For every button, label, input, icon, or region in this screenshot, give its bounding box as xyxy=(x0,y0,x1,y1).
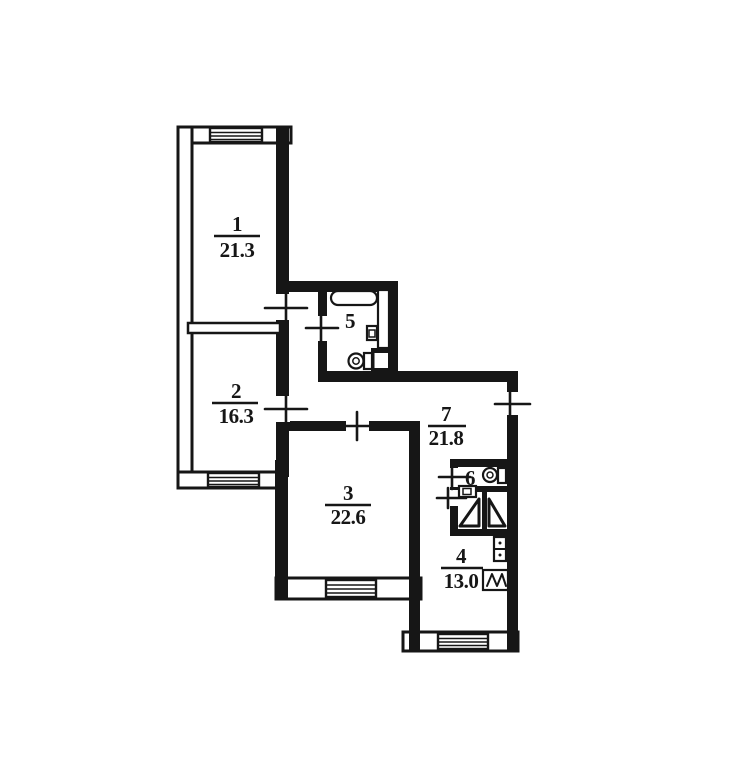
window-room2 xyxy=(208,473,259,487)
room-3-area: 22.6 xyxy=(331,505,366,529)
room-4-label: 4 13.0 xyxy=(441,544,483,593)
floor-plan-page: 1 21.3 2 16.3 3 22.6 4 13.0 5 6 7 21.8 xyxy=(0,0,752,768)
room-6-label: 6 xyxy=(465,466,475,490)
room-2-label: 2 16.3 xyxy=(212,379,258,428)
room-7-label: 7 21.8 xyxy=(428,402,466,450)
vent-shaft-block xyxy=(371,348,392,373)
room-3-label: 3 22.6 xyxy=(325,481,371,529)
wc-toilet xyxy=(483,468,506,483)
wall-rooms12-divider xyxy=(188,323,280,333)
room-5-number: 5 xyxy=(345,309,355,333)
room-6-number: 6 xyxy=(465,466,475,490)
door-bathroom xyxy=(306,315,338,342)
room-1-area: 21.3 xyxy=(220,238,255,262)
wall-closet-bottom xyxy=(450,529,508,536)
stove xyxy=(483,570,508,590)
room-7-number: 7 xyxy=(441,402,451,426)
bathtub xyxy=(331,291,377,305)
room-4-area: 13.0 xyxy=(444,569,479,593)
kitchen-vent-grille xyxy=(494,537,506,561)
bathroom-toilet xyxy=(349,353,373,369)
window-room3 xyxy=(326,580,376,597)
wall-wc-top xyxy=(450,459,507,467)
window-room1 xyxy=(210,128,262,142)
door-room2 xyxy=(265,395,307,423)
floor-plan-drawing: 1 21.3 2 16.3 3 22.6 4 13.0 5 6 7 21.8 xyxy=(0,0,752,768)
wall-left-outer xyxy=(178,127,192,488)
room-labels: 1 21.3 2 16.3 3 22.6 4 13.0 5 6 7 21.8 xyxy=(212,212,483,593)
wall-room3-right xyxy=(409,421,420,651)
room-2-number: 2 xyxy=(231,379,241,403)
vent-duct xyxy=(378,290,389,348)
wall-elbow-left xyxy=(275,460,288,600)
room-4-number: 4 xyxy=(456,544,467,568)
wall-closet-divider xyxy=(482,492,487,531)
room-7-area: 21.8 xyxy=(429,426,464,450)
window-kitchen xyxy=(438,634,488,649)
room-1-label: 1 21.3 xyxy=(214,212,260,262)
room-1-number: 1 xyxy=(232,212,242,236)
door-room3 xyxy=(344,412,371,440)
room-5-label: 5 xyxy=(345,309,355,333)
wall-hall-top xyxy=(388,371,518,382)
door-room1 xyxy=(265,293,307,321)
room-2-area: 16.3 xyxy=(219,404,254,428)
bathroom-sink xyxy=(367,326,377,340)
room-3-number: 3 xyxy=(343,481,353,505)
